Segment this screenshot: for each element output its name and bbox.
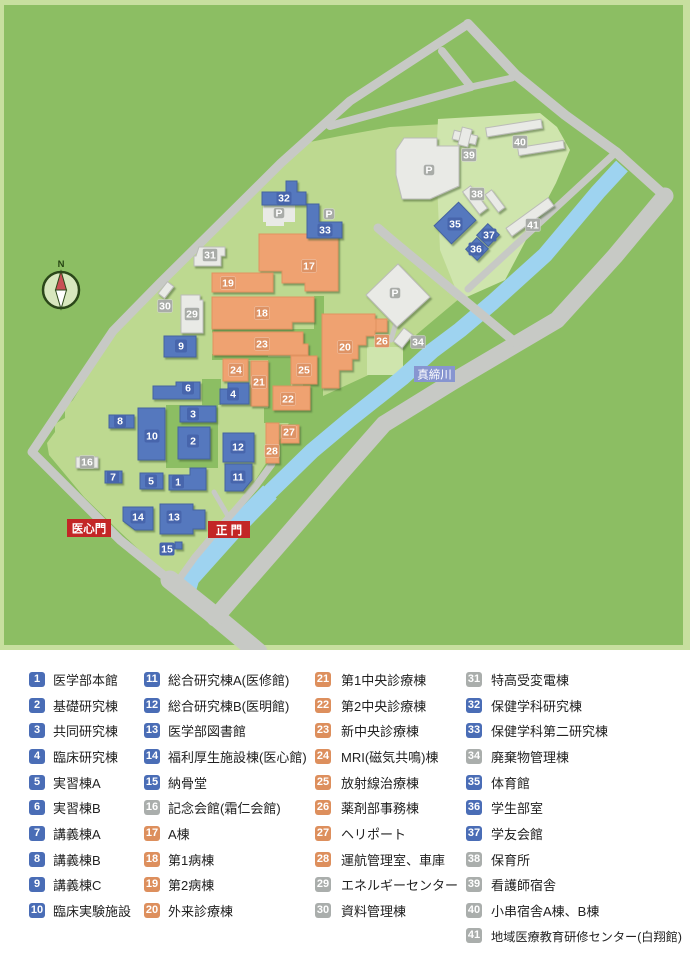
svg-text:34: 34 — [412, 337, 424, 349]
svg-text:19: 19 — [222, 278, 234, 290]
svg-text:36: 36 — [470, 244, 482, 256]
svg-text:31: 31 — [204, 250, 216, 262]
svg-text:41: 41 — [527, 220, 539, 232]
svg-text:30: 30 — [159, 301, 171, 313]
svg-text:29: 29 — [186, 309, 198, 321]
svg-text:38: 38 — [471, 189, 483, 201]
svg-text:3: 3 — [190, 409, 196, 421]
svg-text:9: 9 — [178, 341, 184, 353]
svg-text:35: 35 — [449, 219, 461, 231]
svg-text:P: P — [391, 288, 398, 300]
svg-text:26: 26 — [376, 336, 388, 348]
svg-text:28: 28 — [266, 446, 278, 458]
svg-text:22: 22 — [282, 394, 294, 406]
svg-text:12: 12 — [232, 442, 244, 454]
svg-text:24: 24 — [230, 365, 242, 377]
svg-text:27: 27 — [283, 427, 295, 439]
svg-text:25: 25 — [298, 365, 310, 377]
svg-text:39: 39 — [463, 150, 475, 162]
svg-text:P: P — [275, 208, 282, 220]
svg-text:18: 18 — [256, 308, 268, 320]
svg-text:17: 17 — [303, 261, 315, 273]
svg-text:真締川: 真締川 — [417, 368, 452, 382]
svg-text:4: 4 — [230, 389, 236, 401]
svg-text:32: 32 — [278, 193, 290, 205]
svg-text:正 門: 正 門 — [216, 524, 242, 537]
svg-text:23: 23 — [256, 339, 268, 351]
svg-text:7: 7 — [110, 472, 116, 484]
svg-text:2: 2 — [190, 436, 196, 448]
svg-text:P: P — [425, 165, 432, 177]
svg-text:16: 16 — [81, 457, 93, 469]
svg-text:1: 1 — [175, 477, 181, 489]
svg-text:5: 5 — [148, 476, 154, 488]
svg-text:20: 20 — [339, 342, 351, 354]
svg-text:N: N — [58, 259, 65, 270]
svg-text:40: 40 — [514, 137, 526, 149]
svg-text:11: 11 — [232, 472, 243, 484]
svg-text:15: 15 — [161, 544, 173, 556]
svg-text:6: 6 — [185, 383, 191, 395]
svg-text:21: 21 — [253, 377, 265, 389]
svg-text:13: 13 — [168, 512, 180, 524]
svg-text:医心門: 医心門 — [72, 523, 107, 536]
svg-text:P: P — [325, 209, 332, 221]
svg-text:10: 10 — [146, 431, 158, 443]
svg-text:33: 33 — [319, 225, 331, 237]
svg-text:14: 14 — [132, 512, 144, 524]
svg-text:8: 8 — [117, 416, 123, 428]
svg-text:37: 37 — [483, 230, 495, 242]
